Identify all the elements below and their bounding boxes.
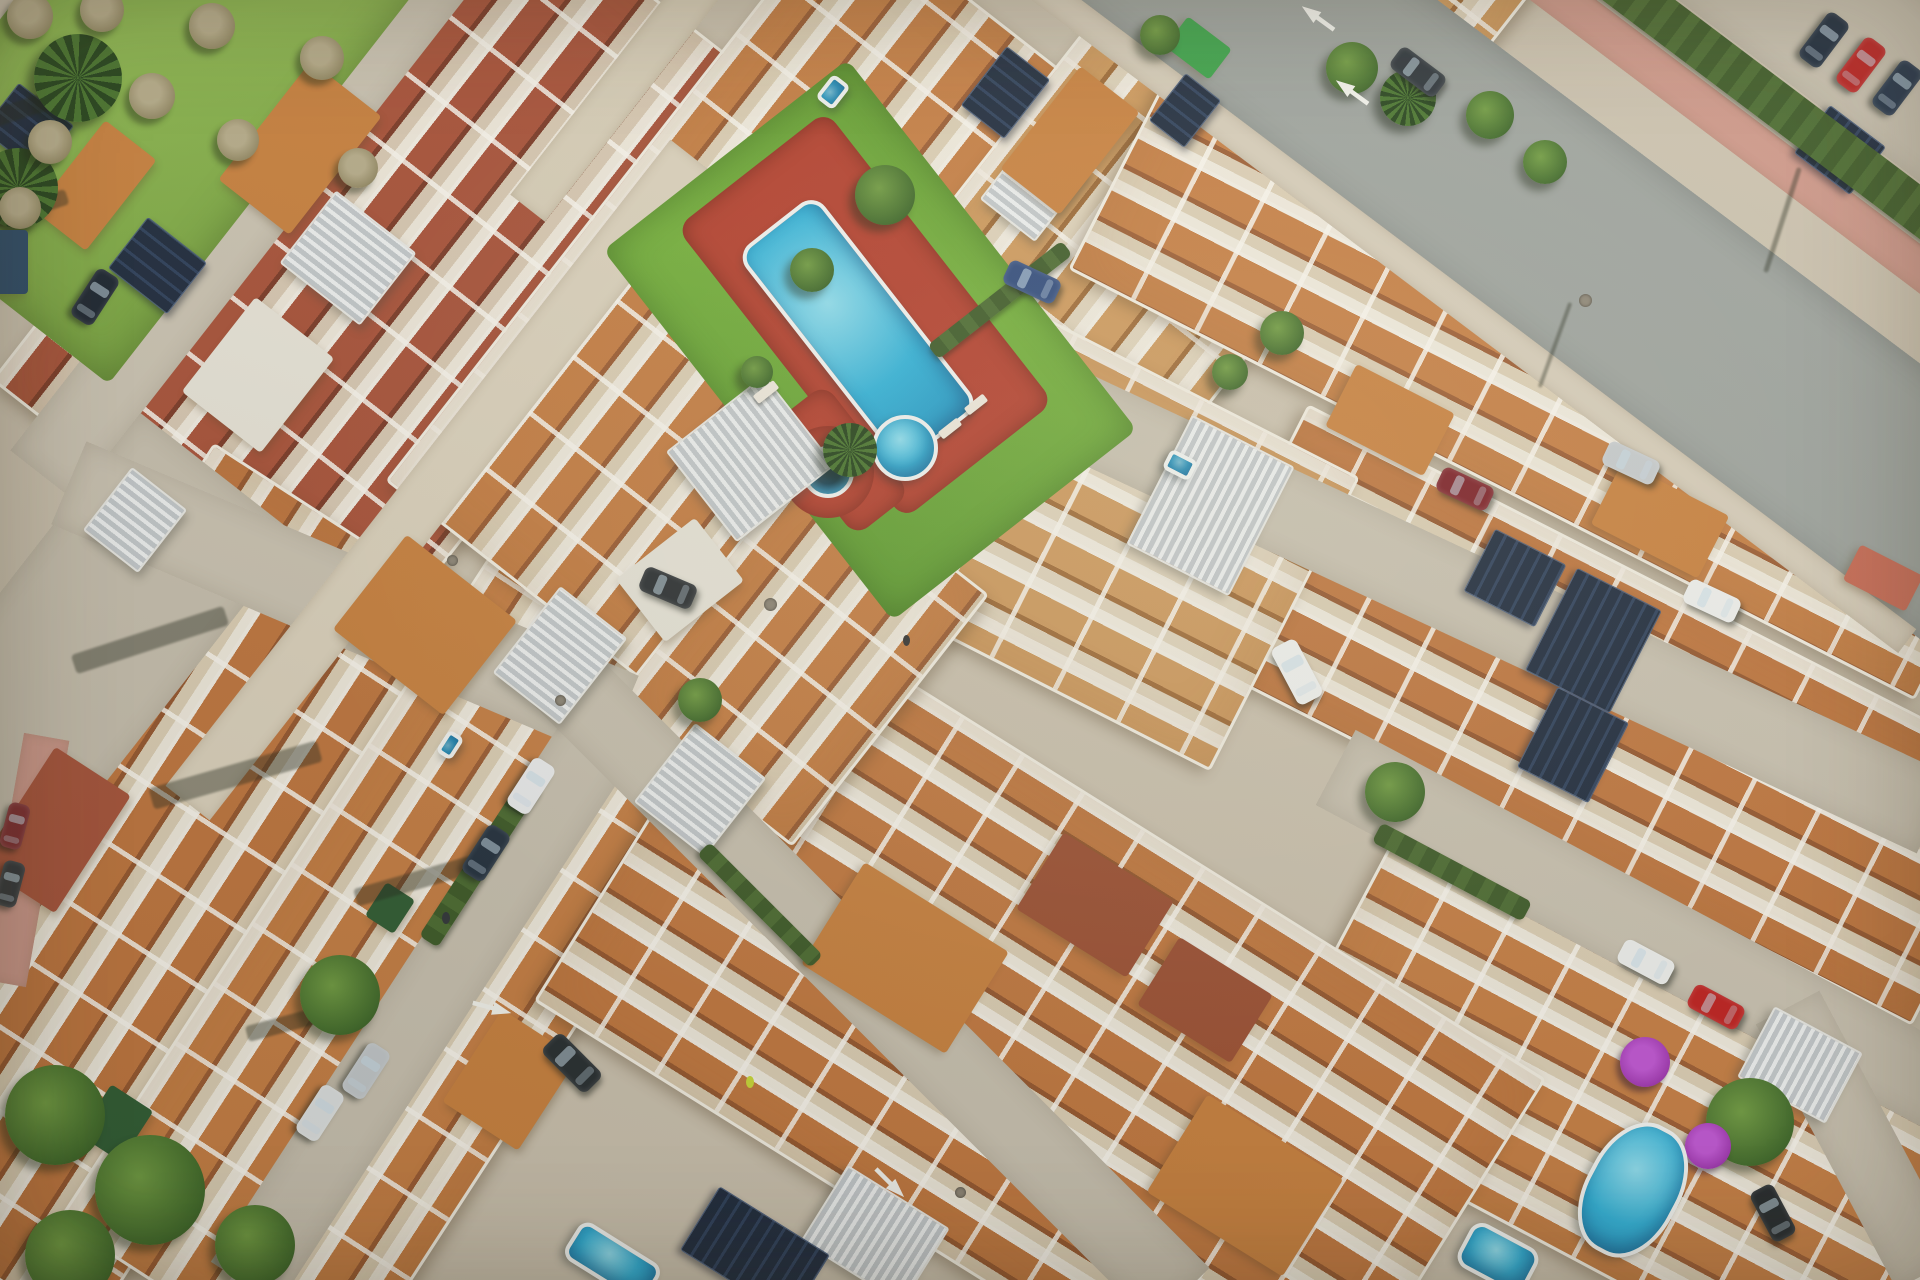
manhole (555, 695, 566, 706)
pedestrian (442, 912, 450, 924)
tree-cluster (95, 1135, 205, 1245)
thatched-parasol (189, 3, 235, 49)
thatched-parasol (129, 73, 175, 119)
thatched-parasol (217, 119, 259, 161)
pedestrian (903, 635, 910, 646)
tree (1365, 762, 1425, 822)
thatched-parasol (28, 120, 72, 164)
manhole (764, 598, 777, 611)
tree-cluster (215, 1205, 295, 1280)
tree (790, 248, 834, 292)
palm-tree (34, 34, 122, 122)
purple-parasol (1620, 1037, 1670, 1087)
communal-pool-lobe (872, 415, 938, 481)
tree (1466, 91, 1514, 139)
tree (1260, 311, 1304, 355)
tree (1212, 354, 1248, 390)
worker-hi-viz (746, 1076, 754, 1088)
manhole (447, 555, 458, 566)
thatched-parasol (338, 148, 378, 188)
tree (1140, 15, 1180, 55)
manhole (955, 1187, 966, 1198)
private-pool (560, 1218, 664, 1280)
thatched-parasol (0, 187, 41, 229)
manhole (1579, 294, 1592, 307)
tree-cluster (5, 1065, 105, 1165)
aerial-photo (0, 0, 1920, 1280)
palm-tree (823, 423, 877, 477)
tree (1523, 140, 1567, 184)
thatched-parasol (300, 36, 344, 80)
tree (678, 678, 722, 722)
tree (300, 955, 380, 1035)
purple-parasol (1685, 1123, 1731, 1169)
tree (855, 165, 915, 225)
lap-pool-edge (0, 230, 28, 294)
